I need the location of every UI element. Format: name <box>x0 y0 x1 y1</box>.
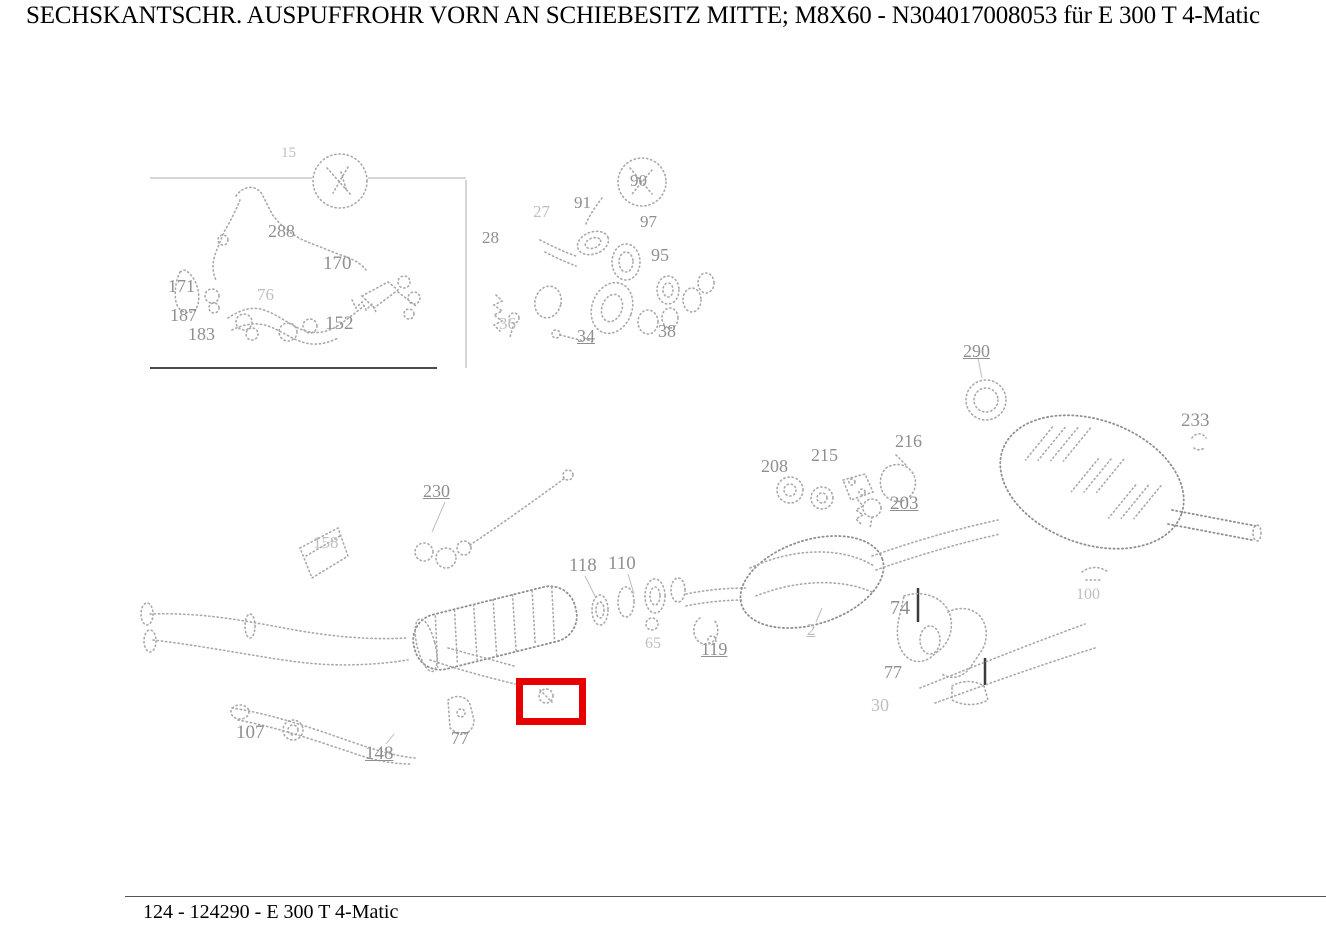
footer-model-text: 124 - 124290 - E 300 T 4-Matic <box>143 901 398 924</box>
part-label-118[interactable]: 118 <box>569 556 597 575</box>
part-label-187[interactable]: 187 <box>170 306 197 324</box>
part-label-90[interactable]: 90 <box>630 172 647 189</box>
part-label-30[interactable]: 30 <box>871 696 889 714</box>
part-label-100[interactable]: 100 <box>1076 587 1100 603</box>
part-label-107[interactable]: 107 <box>236 723 265 742</box>
part-label-288[interactable]: 288 <box>268 222 295 240</box>
part-label-110[interactable]: 110 <box>608 554 636 573</box>
part-label-27[interactable]: 27 <box>533 203 550 220</box>
part-label-215[interactable]: 215 <box>811 446 838 464</box>
highlight-box <box>516 678 586 725</box>
part-label-170[interactable]: 170 <box>323 254 352 273</box>
part-label-34[interactable]: 34 <box>577 327 595 345</box>
part-label-77[interactable]: 77 <box>884 663 902 681</box>
part-label-28[interactable]: 28 <box>482 229 499 246</box>
part-label-97[interactable]: 97 <box>640 213 657 230</box>
footer-divider <box>125 896 1326 897</box>
part-label-15[interactable]: 15 <box>281 146 296 161</box>
part-label-158[interactable]: 158 <box>313 534 339 551</box>
part-label-65[interactable]: 65 <box>645 636 661 652</box>
part-label-183[interactable]: 183 <box>188 325 215 343</box>
part-label-76[interactable]: 76 <box>257 286 274 303</box>
part-label-36[interactable]: 36 <box>499 315 516 332</box>
part-label-148[interactable]: 148 <box>365 744 394 763</box>
part-labels-layer: 1528817017176187152183909197272895363438… <box>0 0 1326 937</box>
part-label-91[interactable]: 91 <box>574 194 591 211</box>
part-label-38[interactable]: 38 <box>658 322 676 340</box>
part-label-208[interactable]: 208 <box>761 457 788 475</box>
part-label-77[interactable]: 77 <box>451 729 469 747</box>
part-label-233[interactable]: 233 <box>1181 411 1210 430</box>
part-label-2[interactable]: 2 <box>807 621 816 638</box>
part-label-216[interactable]: 216 <box>895 432 922 450</box>
part-label-171[interactable]: 171 <box>168 277 195 295</box>
part-label-95[interactable]: 95 <box>651 246 669 264</box>
part-label-119[interactable]: 119 <box>701 640 727 658</box>
part-label-230[interactable]: 230 <box>423 482 450 500</box>
part-label-152[interactable]: 152 <box>325 314 354 333</box>
part-label-203[interactable]: 203 <box>890 494 919 513</box>
part-label-74[interactable]: 74 <box>890 598 910 618</box>
part-label-290[interactable]: 290 <box>963 342 990 360</box>
